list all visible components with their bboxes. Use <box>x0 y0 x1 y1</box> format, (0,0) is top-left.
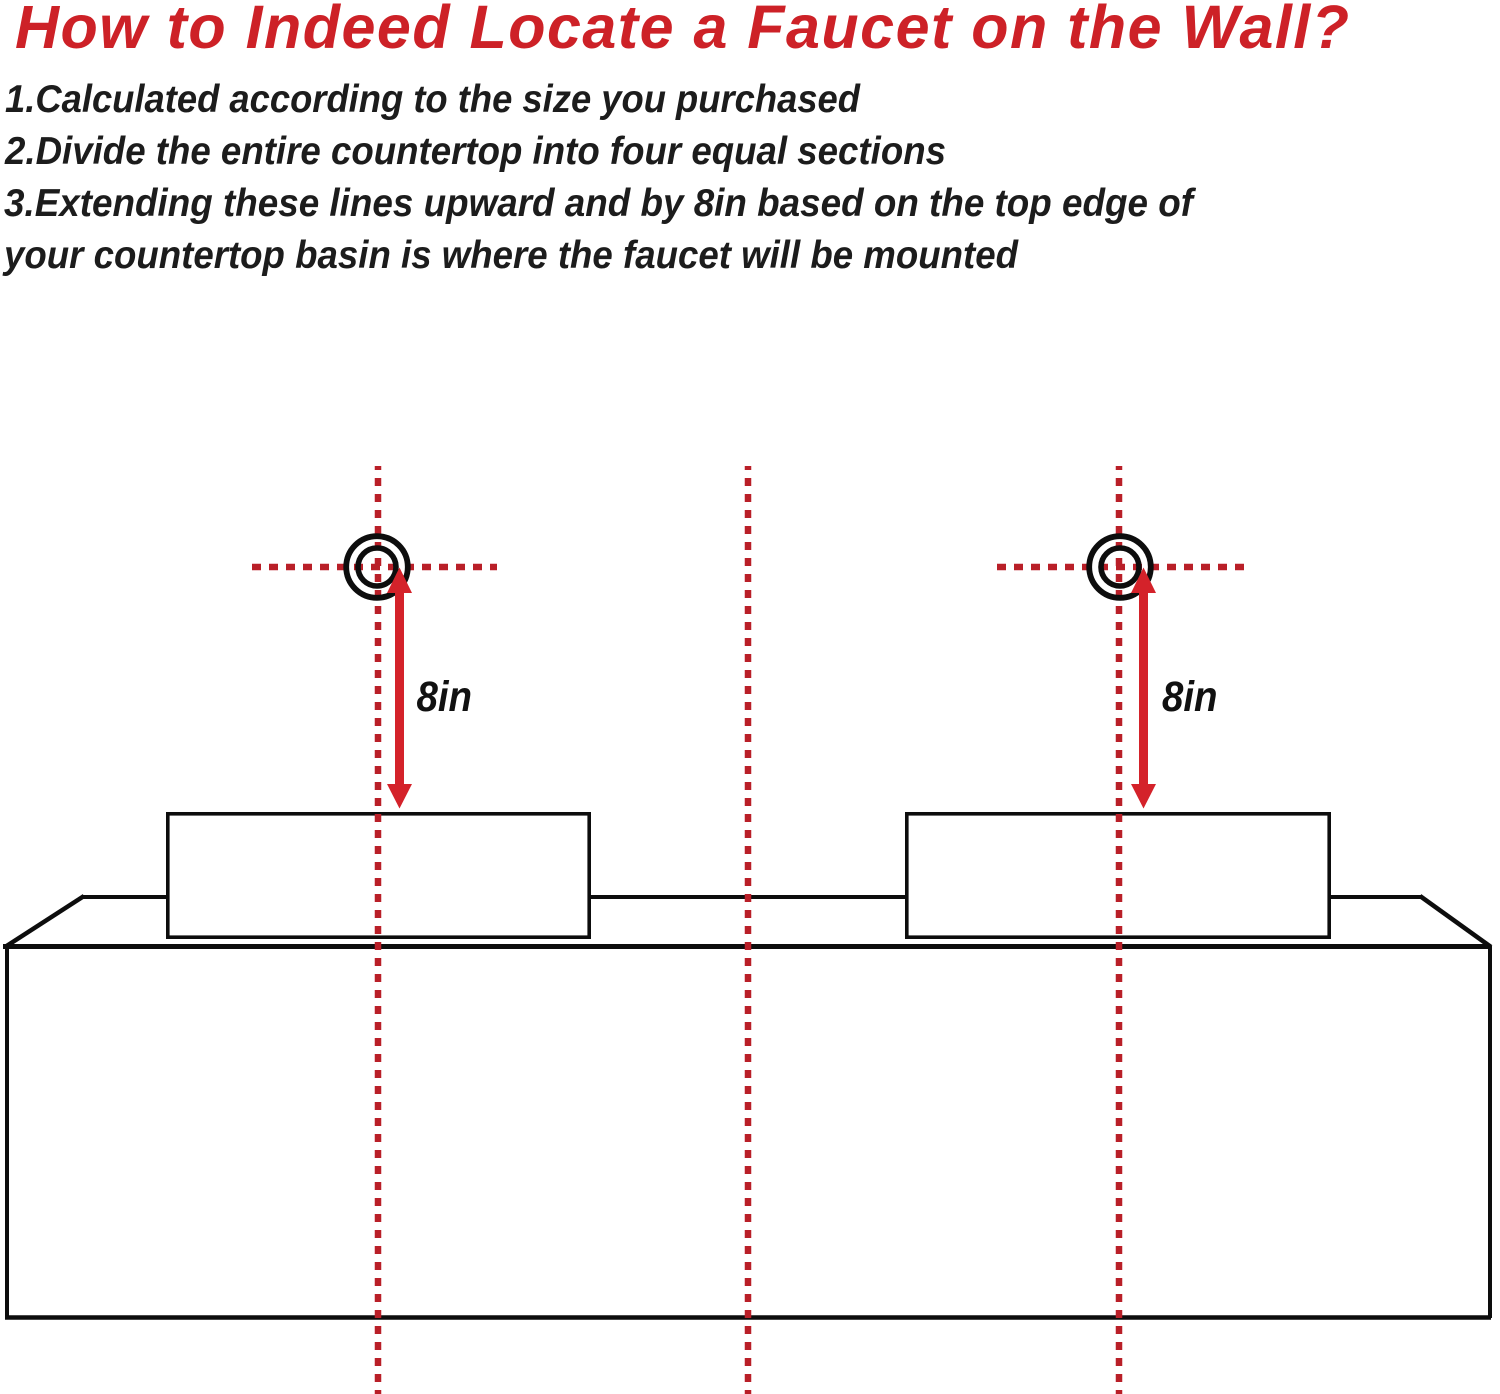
svg-text:2.Divide the entire countertop: 2.Divide the entire countertop into four… <box>4 130 946 173</box>
svg-text:your countertop basin is where: your countertop basin is where the fauce… <box>2 234 1019 277</box>
svg-text:1.Calculated according to the: 1.Calculated according to the size you p… <box>5 78 861 121</box>
svg-text:3.Extending these lines upward: 3.Extending these lines upward and by 8i… <box>4 182 1197 225</box>
svg-text:8in: 8in <box>1162 674 1218 721</box>
svg-text:How to Indeed Locate a Faucet: How to Indeed Locate a Faucet on the Wal… <box>15 0 1349 61</box>
svg-text:8in: 8in <box>417 674 473 721</box>
